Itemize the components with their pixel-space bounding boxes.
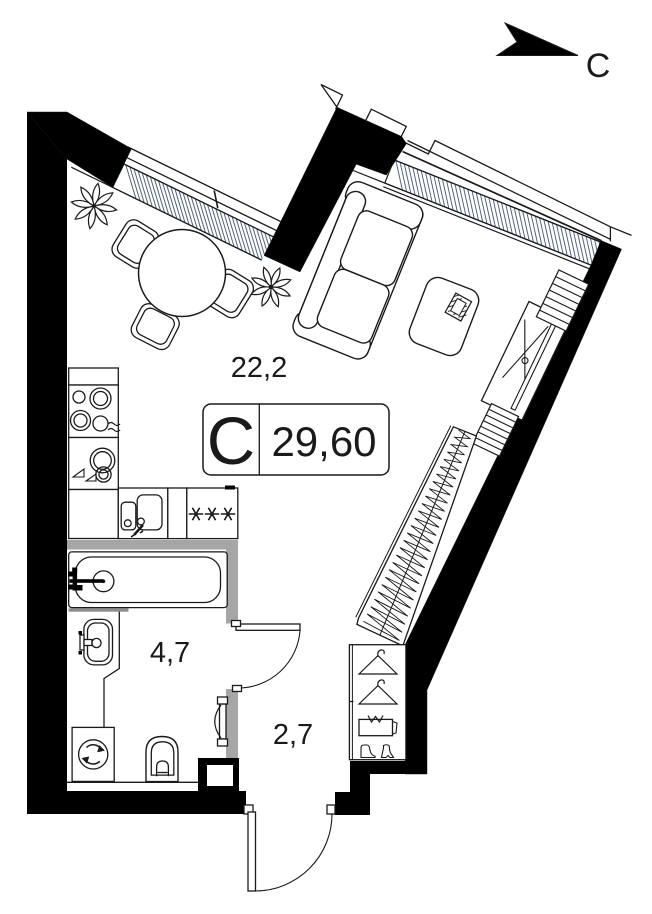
svg-text:С: С xyxy=(586,47,611,85)
svg-text:2,7: 2,7 xyxy=(273,719,313,751)
svg-text:29,60: 29,60 xyxy=(271,418,376,465)
svg-text:22,2: 22,2 xyxy=(231,352,287,384)
svg-text:С: С xyxy=(207,404,255,479)
svg-text:4,7: 4,7 xyxy=(150,637,190,669)
